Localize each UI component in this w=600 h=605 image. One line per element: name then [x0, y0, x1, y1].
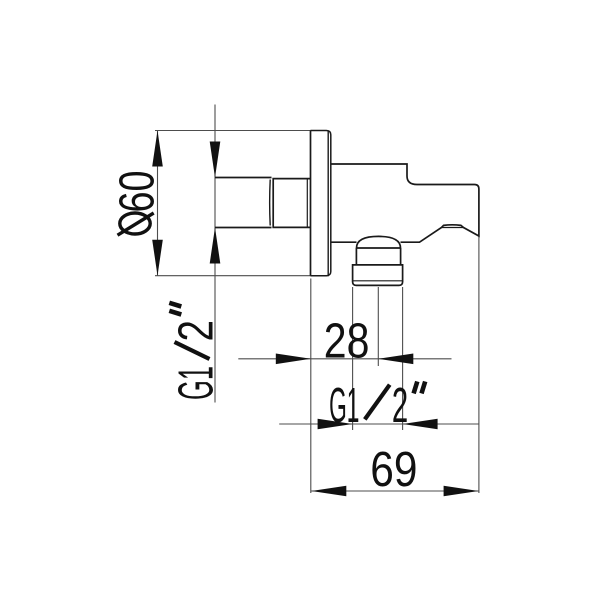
svg-text:69: 69 [370, 442, 417, 497]
svg-text:2: 2 [392, 378, 408, 433]
svg-text:28: 28 [324, 314, 370, 369]
svg-text:G1: G1 [169, 366, 224, 400]
svg-text:60: 60 [110, 171, 165, 213]
svg-text:G1: G1 [329, 378, 359, 433]
svg-text:2: 2 [169, 320, 224, 342]
